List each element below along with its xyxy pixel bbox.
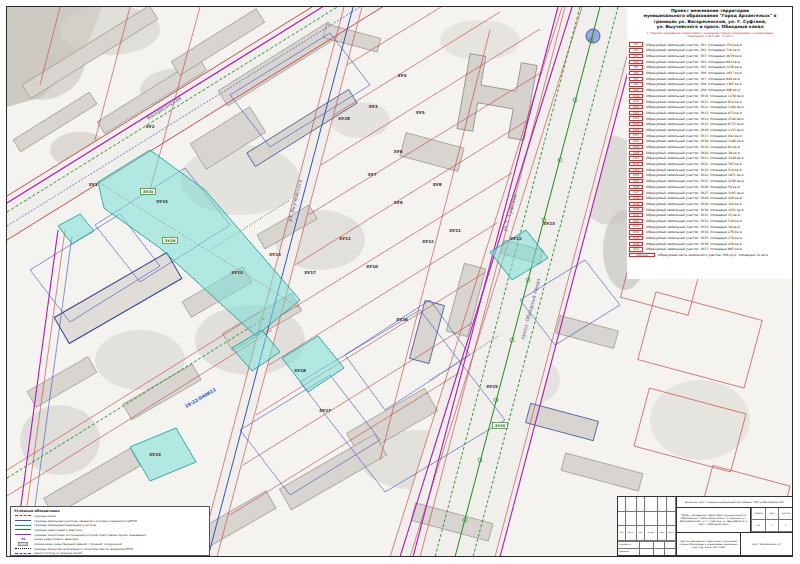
parcel-label: ЗУ17 [304,270,316,275]
parcel-label: ЗУ7 [367,172,376,177]
sheet-value: 1 [765,520,779,532]
parcel-description: Образуемый земельный участок: ЗУ10, площ… [646,94,744,98]
legend: Условные обозначения красные линииграниц… [10,506,210,556]
parcel-label: ЗУ27 [319,408,331,413]
parcel-description: Образуемый земельный участок: ЗУ19, площ… [646,145,740,149]
stamp-role: Проверил [618,548,640,555]
parcel-id-box: ЗУ17 [629,133,643,137]
parcel-id-box: ЗУ2 [629,48,643,52]
parcel-label: ЗУ21 [449,228,461,233]
parcel-description: Образуемый земельный участок: ЗУ4, площа… [646,60,740,64]
legend-item: линия отступа от красных линий [14,551,206,556]
parcel-id-box: ЗУ4 [629,60,643,64]
parcel-id-box: ЗУ28 [629,196,643,200]
parcel-description: Образуемый земельный участок: ЗУ37, площ… [646,247,742,251]
stamp-organization: ООО "Архземкадастр" [740,533,792,555]
parcel-description: Образуемый земельный участок: ЗУ5, площа… [646,65,742,69]
parcel-description: Образуемый земельный участок: ЗУ14, площ… [646,117,744,121]
parcel-id-box: ЗУ12 [629,105,643,109]
legend-label: границы объектов капитального строительс… [34,547,133,551]
legend-label: границы территории, в отношении которой … [34,533,146,537]
parcel-description: Образуемый земельный участок: ЗУ16, площ… [646,128,744,132]
sheets-label: Листов [778,508,792,520]
parcel-description: Образуемый земельный участок: ЗУ29, площ… [646,202,742,206]
parcel-id-box: ЗУ25 [629,179,643,183]
parcel-id-box: ЗУ1 [629,42,643,46]
parcel-id-box: ЗУ6 [629,71,643,75]
parcel-description: Образуемый земельный участок: ЗУ9, площа… [646,88,740,92]
parcel-id-box: ЗУ36 [629,242,643,246]
parcel-label: ЗУ4 [397,73,406,78]
parcel-description: Образуемая часть земельного участка: ЗУ8… [658,253,768,257]
parcel-id-box: ЗУ27 [629,190,643,194]
parcel-id-box: ЗУ10 [629,94,643,98]
parcel-description: Образуемый земельный участок: ЗУ27, площ… [646,191,744,195]
parcel-description: Образуемый земельный участок: ЗУ18, площ… [646,139,744,143]
parcel-label: ЗУ10 [366,264,378,269]
parcel-id-box: ЗУ23 [629,168,643,172]
parcel-label: ЗУ14 [231,270,243,275]
stamp-right: Заказчик: ООО "Специализированный застро… [677,497,792,555]
legend-label: линия отступа от красных линий [34,551,82,555]
parcel-label: ЗУ11 [339,236,351,241]
sheets-value: 1 [778,520,792,532]
stamp-col: Кол.уч. [626,526,637,541]
parcel-label: ЗУ13 [269,252,281,257]
parcel-id-box: ЗУ8 [629,82,643,86]
parcel-id-box: ЗУ32 [629,219,643,223]
parcel-description: Образуемый земельный участок: ЗУ33, площ… [646,225,740,229]
stamp-revision-grid: Изм. Кол.уч. Лист № док. Подп. Дата [618,497,676,541]
parcel-label: ЗУ28 [338,116,350,121]
parcel-id-box: ЗУ31 [629,213,643,217]
parcel-label: ЗУ5 [415,110,424,115]
magenta-sample [14,533,32,537]
parcel-description: Образуемый земельный участок: ЗУ6, площа… [646,71,742,75]
parcel-label: ЗУ26 [495,424,506,428]
parcel-id-box: ЗУ26 [629,185,643,189]
parcel-description: Образуемый земельный участок: ЗУ24, площ… [646,173,744,177]
stage-value: ПМ [751,520,765,532]
parcel-label: ЗУ23 [543,221,555,226]
parcel-description: Образуемый земельный участок: ЗУ1, площа… [646,43,742,47]
parcel-id-box: ЗУ37 [629,247,643,251]
parcel-label: ЗУ18 [294,368,306,373]
parcel-description: Образуемый земельный участок: ЗУ32, площ… [646,219,742,223]
parcel-id-box: ЗУ7 [629,77,643,81]
parcel-description: Образуемый земельный участок: ЗУ7, площа… [646,77,740,81]
legend-items: красные линииграницы земельных участков,… [14,514,206,556]
legend-label: номер кадастрового квартала [34,537,78,541]
legend-title: Условные обозначения [14,509,206,513]
parcel-description: Образуемый земельный участок: ЗУ30, площ… [646,208,744,212]
parcel-description: Образуемый земельный участок: ЗУ17, площ… [646,134,742,138]
parcel-description: Образуемый земельный участок: ЗУ31, площ… [646,213,740,217]
parcel-table: ЗУ1Образуемый земельный участок: ЗУ1, пл… [629,42,791,258]
parcel-id-box: ЗУ24 [629,173,643,177]
parcel-description: Образуемый земельный участок: ЗУ22, площ… [646,162,742,166]
parcel-id-box: ЗУ22 [629,162,643,166]
stamp-col: Дата [667,526,676,541]
parcel-label: ЗУ16 [396,317,408,322]
parcel-description: Образуемый земельный участок: ЗУ25, площ… [646,179,744,183]
parcel-id-box: ЗУ34 [629,230,643,234]
drawing-sheet: Воскресенскаяул. Выучейскогоул. Г. Суфти… [0,0,800,564]
legend-label: границы кадастрового квартала [34,528,82,532]
parcel-id-box: ЗУ8/чзу1 [629,253,655,257]
parcel-description: Образуемый земельный участок: ЗУ35, площ… [646,236,742,240]
parcel-description: Образуемый земельный участок: ЗУ15, площ… [646,122,744,126]
stage-label: Стадия [751,508,765,520]
green-sample [14,528,32,532]
parcel-description: Образуемый земельный участок: ЗУ2, площа… [646,48,740,52]
blue-sample [14,519,32,523]
parcel-label: ЗУ9 [393,200,402,205]
parcel-description: Образуемый земельный участок: ЗУ23, площ… [646,168,742,172]
parcel-description: Образуемый земельный участок: ЗУ28, площ… [646,196,742,200]
parcel-id-box: ЗУ14 [629,116,643,120]
quarter-sample: :91 [14,537,32,541]
title-line: ул. Выучейского и просп. Обводный канал [629,25,791,30]
stamp-stage-table: Стадия Лист Листов ПМ 1 1 [750,508,792,532]
stamp-project: Проект межевания территории муниципально… [677,508,750,532]
parcel-id-box: ЗУ13 [629,111,643,115]
parcel-id-box: ЗУ3 [629,54,643,58]
red-sample [14,514,32,518]
parcel-id-box: ЗУ18 [629,139,643,143]
parcel-label: ЗУ19 [165,239,176,243]
parcel-label: ЗУ2 [145,124,154,129]
parcel-label: ЗУ1 [88,182,97,187]
stamp-col: Подп. [658,526,667,541]
parcel-label: ЗУ8 [432,182,441,187]
stamp-col: № док. [645,526,658,541]
subtitle-line: земельных участков" - 1 лист [629,35,791,39]
stamp-drawing-title: Чертеж межевания территории с указанием … [677,533,740,555]
dotted-sample [14,547,32,551]
parcel-description: Образуемый земельный участок: ЗУ26, площ… [646,185,740,189]
right-panel: Проект межевания территории муниципально… [627,7,793,279]
parcel-description: Образуемый земельный участок: ЗУ12, площ… [646,105,744,109]
parcel-label: ЗУ25 [486,384,498,389]
parcel-description: Образуемый земельный участок: ЗУ13, площ… [646,111,742,115]
stamp-col: Лист [637,526,645,541]
parcel-description: Образуемый земельный участок: ЗУ20, площ… [646,151,740,155]
bluedash-sample [14,551,32,555]
parcel-label: ЗУ22 [510,236,522,241]
parcel-label: ЗУ3 [368,104,377,109]
stamp-left-grid: Изм. Кол.уч. Лист № док. Подп. Дата Разр… [618,497,677,555]
map-subtitle: 1."Чертеж межевания территории с указани… [629,32,791,39]
parcel-id-box: ЗУ35 [629,236,643,240]
parcel-label: ЗУ24 [149,452,161,457]
map-title: Проект межевания территории муниципально… [629,9,791,31]
parcel-id-box: ЗУ20 [629,151,643,155]
sheet-label: Лист [765,508,779,520]
parcel-id-box: ЗУ5 [629,65,643,69]
parcel-label: ЗУ20 [143,190,154,194]
stamp-roles: Разработал Проверил [618,541,676,555]
parcel-description: Образуемый земельный участок: ЗУ34, площ… [646,230,742,234]
parcel-id-box: ЗУ33 [629,224,643,228]
parcel-id-box: ЗУ19 [629,145,643,149]
stamp-col: Изм. [618,526,626,541]
graybox-sample [14,542,32,546]
legend-label: границы образуемых земельных участков [34,523,96,527]
parcel-id-box: ЗУ9 [629,88,643,92]
parcel-description: Образуемый земельный участок: ЗУ36, площ… [646,242,742,246]
parcel-label: ЗУ6 [393,149,402,154]
parcel-description: Образуемый земельный участок: ЗУ8, площа… [646,82,742,86]
title-block: Изм. Кол.уч. Лист № док. Подп. Дата Разр… [617,496,793,556]
parcel-description: Образуемый земельный участок: ЗУ11, площ… [646,100,742,104]
parcel-id-box: ЗУ30 [629,207,643,211]
parcel-id-box: ЗУ29 [629,202,643,206]
parcel-id-box: ЗУ21 [629,156,643,160]
parcel-description: Образуемый земельный участок: ЗУ21, площ… [646,156,744,160]
parcel-id-box: ЗУ11 [629,99,643,103]
parcel-label: ЗУ12 [422,239,434,244]
legend-label: красные линии [34,514,56,518]
legend-label: границы земельных участков, сведения о к… [34,519,137,523]
legend-label: обозначение существующих зданий, строени… [34,542,122,546]
teal-sample [14,523,32,527]
parcel-label: ЗУ15 [156,199,168,204]
parcel-row: ЗУ8/чзу1Образуемая часть земельного учас… [629,252,791,258]
parcel-description: Образуемый земельный участок: ЗУ3, площа… [646,54,742,58]
stamp-customer: Заказчик: ООО "Специализированный застро… [677,497,792,508]
parcel-id-box: ЗУ16 [629,128,643,132]
parcel-id-box: ЗУ15 [629,122,643,126]
stamp-role: Разработал [618,541,640,548]
